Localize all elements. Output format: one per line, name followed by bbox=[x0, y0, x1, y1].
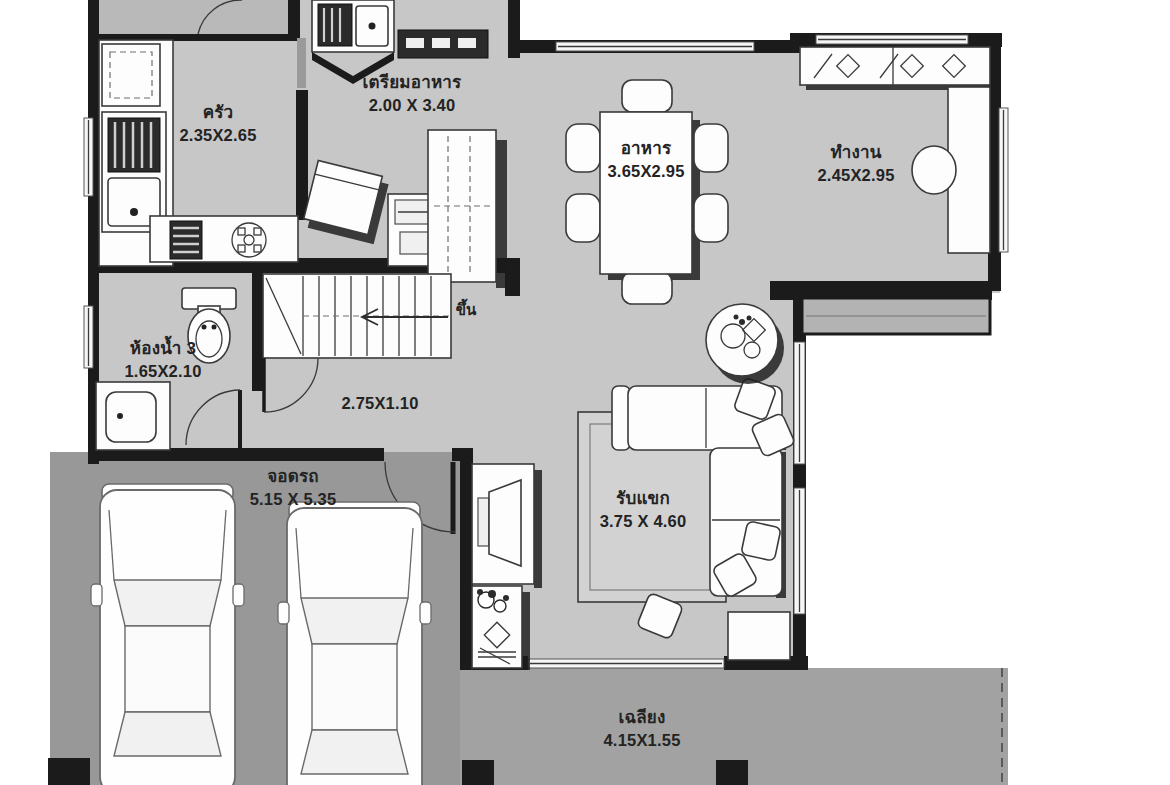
garage-entry-wall bbox=[460, 452, 473, 668]
plant-shelf bbox=[472, 586, 530, 670]
kitchen-prep-divider-wall bbox=[296, 90, 308, 220]
prep-label: เตรียมอาหาร 2.00 X 3.40 bbox=[363, 72, 462, 116]
garage-corner-column bbox=[48, 758, 90, 785]
top-room-right-wall bbox=[288, 0, 300, 38]
dining-chair-right-1 bbox=[694, 124, 728, 172]
terrace-name: เฉลียง bbox=[603, 707, 680, 729]
bathroom-name: ห้องน้ำ 3 bbox=[124, 338, 201, 360]
corner-table bbox=[728, 612, 790, 660]
living-south-sliding-door bbox=[528, 659, 724, 668]
work-bay-window bbox=[802, 298, 990, 334]
bath-hall-divider-wall bbox=[252, 273, 263, 391]
kitchen-sink bbox=[102, 112, 166, 232]
kitchen-name: ครัว bbox=[179, 102, 256, 124]
terrace-column-right bbox=[716, 760, 748, 785]
car-2 bbox=[278, 502, 431, 785]
work-dim: 2.45X2.95 bbox=[817, 164, 894, 186]
kitchen-dim: 2.35X2.65 bbox=[179, 124, 256, 146]
kitchen-dishwasher bbox=[170, 221, 202, 259]
dining-name: อาหาร bbox=[607, 138, 684, 160]
living-east-window-upper bbox=[794, 342, 805, 464]
bathroom-label: ห้องน้ำ 3 1.65X2.10 bbox=[124, 338, 201, 382]
dining-chair-right-2 bbox=[694, 194, 728, 242]
dining-chair-left-2 bbox=[566, 194, 600, 242]
bath-sink bbox=[96, 382, 170, 450]
prep-name: เตรียมอาหาร bbox=[363, 72, 462, 94]
prep-dim: 2.00 X 3.40 bbox=[363, 94, 462, 116]
parking-dim: 5.15 X 5.35 bbox=[250, 488, 337, 510]
dining-north-window bbox=[556, 42, 754, 51]
top-room-floor bbox=[99, 0, 288, 36]
stairs-up-label: ขึ้น bbox=[456, 298, 477, 322]
work-chair bbox=[912, 146, 956, 194]
kitchen-left-window bbox=[84, 118, 93, 196]
parking-label: จอดรถ 5.15 X 5.35 bbox=[250, 466, 337, 510]
hall-column bbox=[505, 258, 520, 296]
hall-label: 2.75X1.10 bbox=[341, 392, 418, 414]
work-name: ทำงาน bbox=[817, 142, 894, 164]
car-1 bbox=[91, 484, 244, 785]
prep-counter-sill bbox=[398, 30, 488, 58]
work-north-window bbox=[816, 35, 968, 44]
terrace-dim: 4.15X1.55 bbox=[603, 729, 680, 751]
living-name: รับแขก bbox=[600, 488, 687, 510]
work-shelf bbox=[800, 47, 992, 90]
kitchen-label: ครัว 2.35X2.65 bbox=[179, 102, 256, 146]
parking-name: จอดรถ bbox=[250, 466, 337, 488]
dining-table bbox=[600, 112, 692, 274]
bath-left-window bbox=[84, 306, 93, 368]
dining-dim: 3.65X2.95 bbox=[607, 160, 684, 182]
work-east-window bbox=[999, 108, 1008, 252]
living-dim: 3.75 X 4.60 bbox=[600, 510, 687, 532]
floor-plan-page: ครัว 2.35X2.65 เตรียมอาหาร 2.00 X 3.40 อ… bbox=[0, 0, 1170, 785]
terrace-label: เฉลียง 4.15X1.55 bbox=[603, 707, 680, 751]
dining-chair-bottom bbox=[622, 272, 672, 304]
dining-chair-left-1 bbox=[566, 124, 600, 172]
living-label: รับแขก 3.75 X 4.60 bbox=[600, 488, 687, 532]
bathroom-dim: 1.65X2.10 bbox=[124, 360, 201, 382]
floor-plan-drawing bbox=[0, 0, 1170, 785]
hall-dim: 2.75X1.10 bbox=[341, 392, 418, 414]
living-east-window-lower bbox=[794, 488, 805, 614]
kitchen-top-appliance bbox=[102, 44, 160, 106]
work-label: ทำงาน 2.45X2.95 bbox=[817, 142, 894, 186]
prep-tall-cabinet bbox=[428, 130, 507, 288]
dining-label: อาหาร 3.65X2.95 bbox=[607, 138, 684, 182]
tv-cabinet bbox=[472, 464, 542, 588]
terrace-column-left bbox=[462, 760, 494, 785]
dining-chair-top bbox=[622, 80, 672, 112]
kitchen-door-panel bbox=[297, 38, 306, 88]
